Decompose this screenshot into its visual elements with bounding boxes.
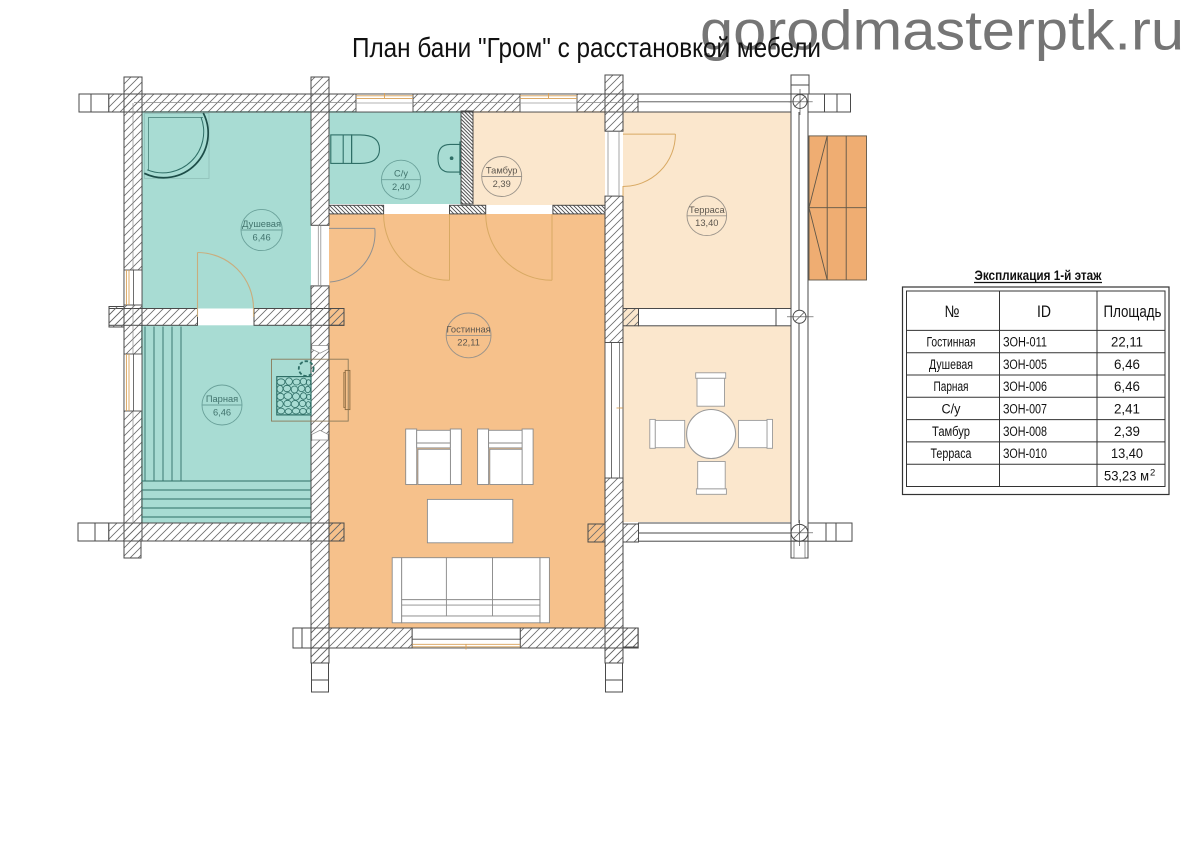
- svg-text:Гостинная: Гостинная: [447, 324, 491, 334]
- svg-text:Терраса: Терраса: [689, 205, 725, 215]
- svg-text:Душевая: Душевая: [929, 357, 973, 373]
- svg-text:6,46: 6,46: [253, 232, 271, 242]
- svg-text:С/у: С/у: [394, 169, 408, 179]
- svg-text:Тамбур: Тамбур: [486, 166, 518, 176]
- svg-text:13,40: 13,40: [1111, 446, 1143, 462]
- svg-text:ЗОН-008: ЗОН-008: [1003, 424, 1047, 440]
- svg-text:Гостинная: Гостинная: [927, 335, 976, 351]
- svg-text:ID: ID: [1037, 303, 1051, 321]
- svg-text:6,46: 6,46: [1114, 357, 1140, 373]
- svg-text:Площадь: Площадь: [1104, 303, 1162, 321]
- svg-text:6,46: 6,46: [1114, 379, 1140, 395]
- svg-text:2,39: 2,39: [493, 179, 511, 189]
- svg-text:53,23 м: 53,23 м: [1104, 468, 1149, 484]
- svg-text:22,11: 22,11: [1111, 335, 1143, 351]
- svg-text:Тамбур: Тамбур: [932, 424, 970, 440]
- svg-text:2,40: 2,40: [392, 182, 410, 192]
- svg-text:ЗОН-010: ЗОН-010: [1003, 446, 1047, 462]
- svg-text:ЗОН-011: ЗОН-011: [1003, 335, 1047, 351]
- svg-text:ЗОН-005: ЗОН-005: [1003, 357, 1047, 373]
- svg-text:ЗОН-006: ЗОН-006: [1003, 379, 1047, 395]
- svg-text:План бани "Гром" с расстановко: План бани "Гром" с расстановкой мебели: [352, 32, 821, 63]
- svg-text:Парная: Парная: [934, 379, 969, 395]
- svg-text:Терраса: Терраса: [931, 446, 972, 462]
- svg-text:2,41: 2,41: [1114, 402, 1140, 418]
- svg-text:2: 2: [1150, 467, 1155, 478]
- svg-text:Экспликация 1-й этаж: Экспликация 1-й этаж: [975, 268, 1102, 283]
- svg-text:22,11: 22,11: [457, 338, 480, 348]
- svg-text:С/у: С/у: [942, 402, 962, 418]
- svg-text:№: №: [945, 303, 960, 321]
- svg-text:ЗОН-007: ЗОН-007: [1003, 402, 1047, 418]
- svg-text:Душевая: Душевая: [242, 219, 281, 229]
- svg-text:13,40: 13,40: [695, 218, 718, 228]
- svg-text:2,39: 2,39: [1114, 424, 1140, 440]
- svg-text:Парная: Парная: [206, 394, 238, 404]
- svg-text:6,46: 6,46: [213, 407, 231, 417]
